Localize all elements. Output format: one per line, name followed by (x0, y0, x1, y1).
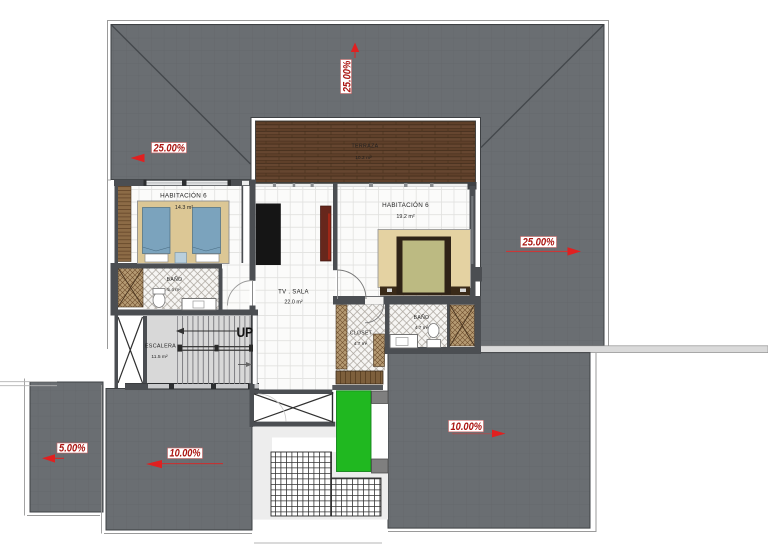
svg-text:25.00%: 25.00% (341, 61, 353, 94)
svg-text:4.7 m²: 4.7 m² (354, 341, 368, 347)
svg-text:5.4 m²: 5.4 m² (167, 287, 181, 293)
svg-text:BAÑO: BAÑO (167, 276, 183, 283)
svg-text:25.00%: 25.00% (522, 237, 555, 249)
svg-text:TV . SALA: TV . SALA (278, 290, 309, 296)
svg-text:ESCALERA: ESCALERA (145, 344, 176, 350)
svg-text:4.7 m²: 4.7 m² (415, 325, 429, 331)
svg-text:HABITACIÓN 6: HABITACIÓN 6 (160, 191, 207, 200)
svg-text:14.3 m²: 14.3 m² (175, 205, 193, 211)
svg-text:HABITACIÓN 6: HABITACIÓN 6 (382, 200, 429, 209)
svg-text:TERRAZA: TERRAZA (351, 144, 378, 150)
svg-text:BAÑO: BAÑO (414, 314, 430, 321)
svg-text:11.5 m²: 11.5 m² (151, 354, 168, 360)
svg-text:10.2 m²: 10.2 m² (355, 155, 372, 161)
svg-text:22.0 m²: 22.0 m² (284, 300, 302, 306)
svg-text:19.2 m²: 19.2 m² (396, 214, 414, 220)
svg-text:10.00%: 10.00% (451, 421, 483, 433)
svg-text:10.00%: 10.00% (170, 448, 201, 460)
svg-text:UP: UP (237, 324, 254, 340)
svg-text:CLOSET: CLOSET (350, 331, 372, 337)
svg-text:25.00%: 25.00% (153, 142, 186, 154)
svg-text:5.00%: 5.00% (59, 442, 86, 454)
